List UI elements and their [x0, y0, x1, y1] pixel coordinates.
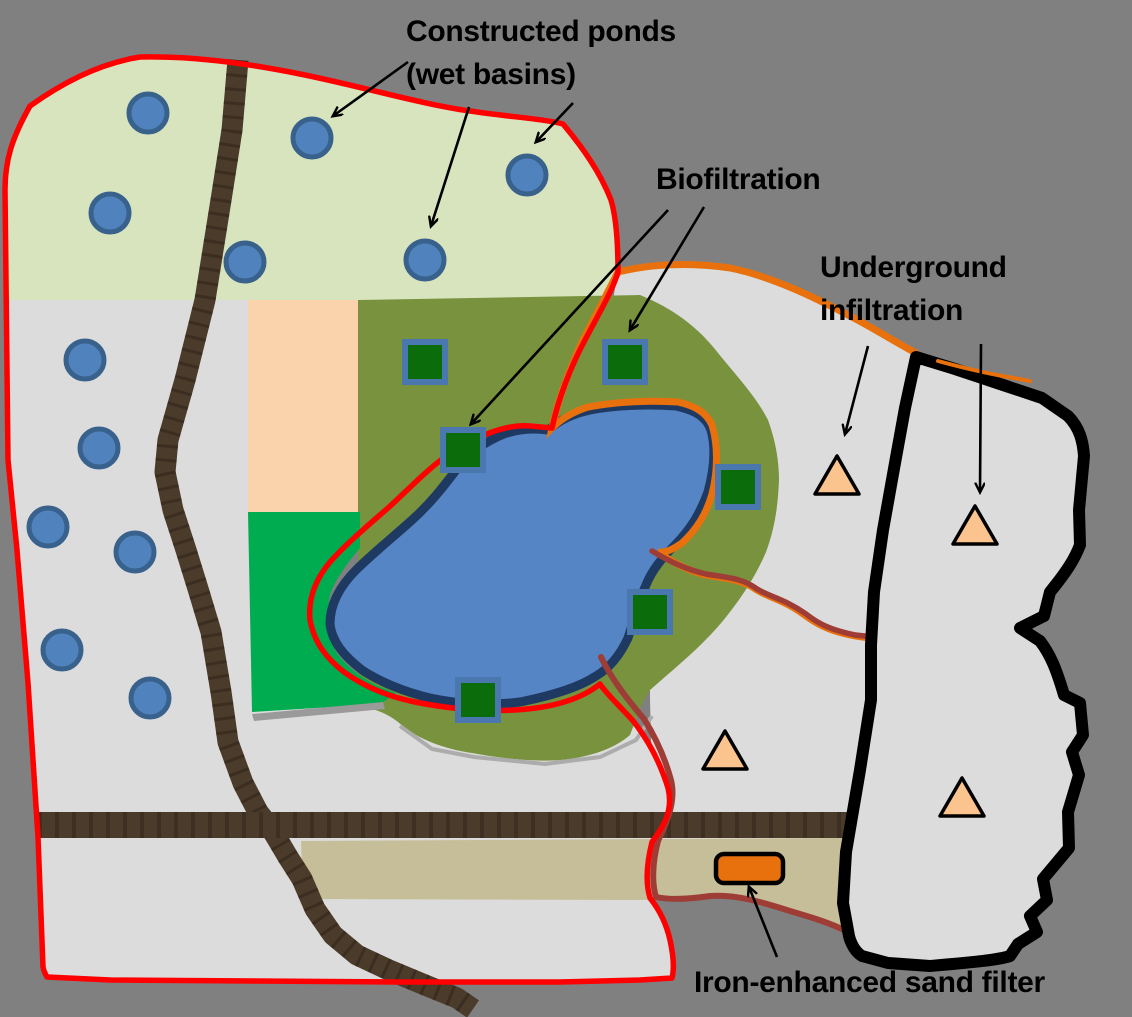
- biofiltration-marker: [630, 592, 670, 632]
- watershed-map: [0, 0, 1132, 1017]
- pond-marker: [29, 508, 67, 546]
- pond-marker: [508, 156, 546, 194]
- biofiltration-marker: [443, 430, 483, 470]
- constructed-ponds-label: Constructed ponds (wet basins): [406, 10, 676, 96]
- pond-marker: [66, 341, 104, 379]
- sand-filter-marker: [716, 854, 783, 883]
- constructed-ponds-label-line1: Constructed ponds: [406, 10, 676, 53]
- biofiltration-marker: [405, 342, 445, 382]
- watershed-map-slide: Constructed ponds (wet basins) Biofiltra…: [0, 0, 1132, 1017]
- pond-marker: [293, 119, 331, 157]
- underground-infiltration-label-line1: Underground: [820, 246, 1007, 289]
- biofiltration-label: Biofiltration: [656, 158, 820, 201]
- biofiltration-marker: [458, 680, 498, 720]
- underground-infiltration-label: Underground infiltration: [820, 246, 1007, 332]
- pond-marker: [116, 533, 154, 571]
- pond-marker: [406, 241, 444, 279]
- constructed-ponds-label-line2: (wet basins): [406, 53, 676, 96]
- peach-parcel: [248, 300, 358, 512]
- pond-marker: [91, 194, 129, 232]
- pond-marker: [226, 243, 264, 281]
- iron-sand-filter-marker: [716, 854, 783, 883]
- biofiltration-marker: [605, 342, 645, 382]
- pond-marker: [131, 679, 169, 717]
- biofiltration-label-line1: Biofiltration: [656, 158, 820, 201]
- underground-infiltration-label-line2: infiltration: [820, 289, 1007, 332]
- iron-sand-filter-label: Iron-enhanced sand filter: [694, 961, 1045, 1004]
- pond-marker: [43, 631, 81, 669]
- biofiltration-marker: [718, 467, 758, 507]
- iron-sand-filter-label-line1: Iron-enhanced sand filter: [694, 961, 1045, 1004]
- pond-marker: [80, 429, 118, 467]
- annotation-arrow: [980, 344, 981, 492]
- pond-marker: [129, 94, 167, 132]
